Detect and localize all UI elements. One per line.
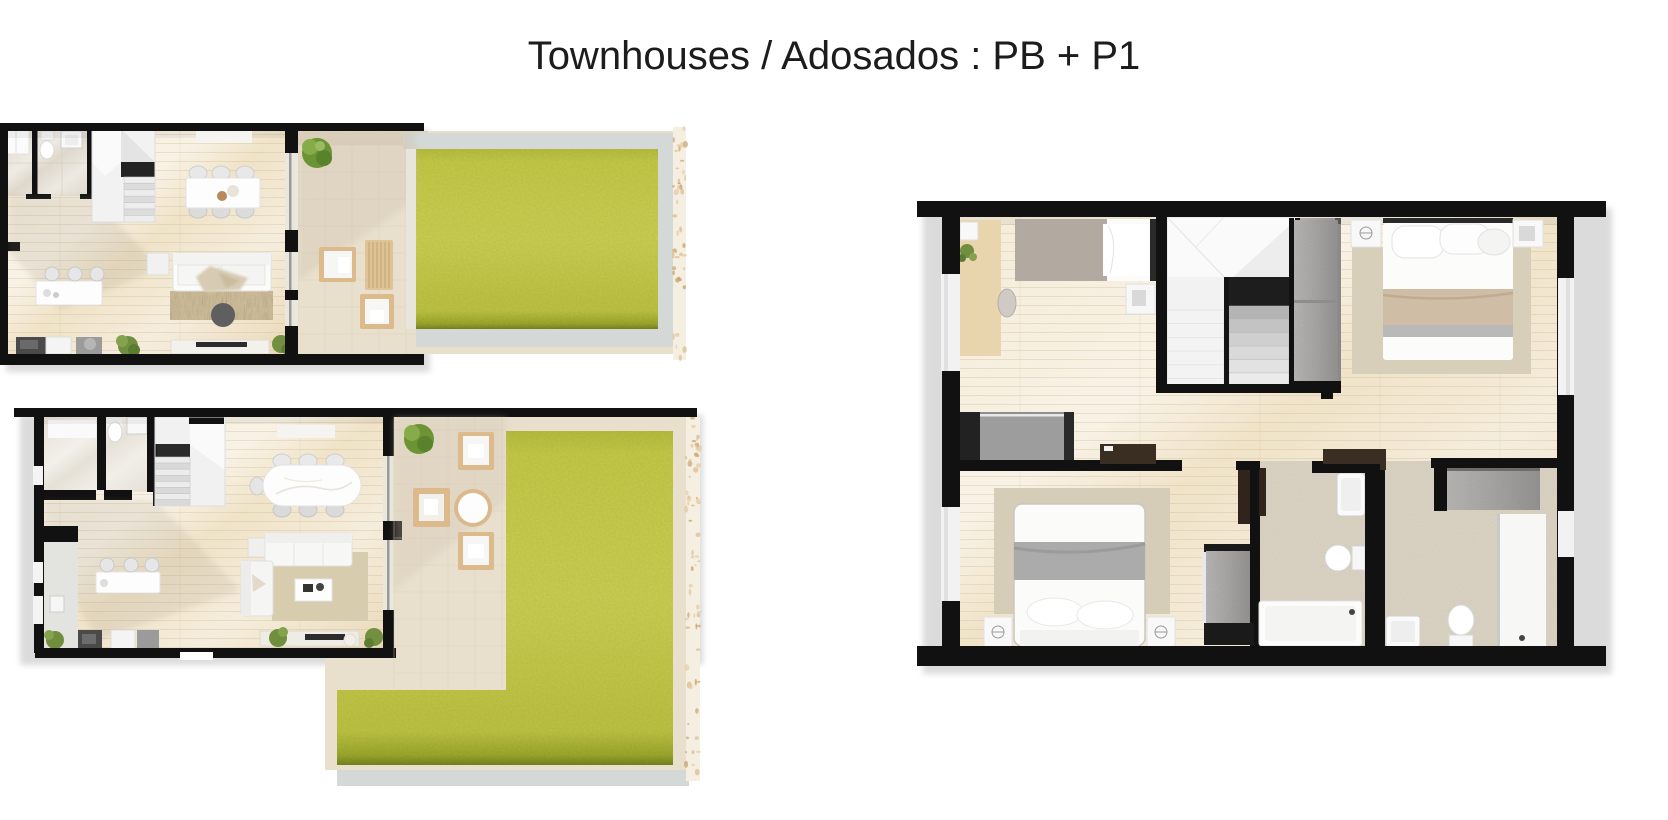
- svg-text:Townhouses / Adosados : PB + P: Townhouses / Adosados : PB + P1: [528, 34, 1141, 78]
